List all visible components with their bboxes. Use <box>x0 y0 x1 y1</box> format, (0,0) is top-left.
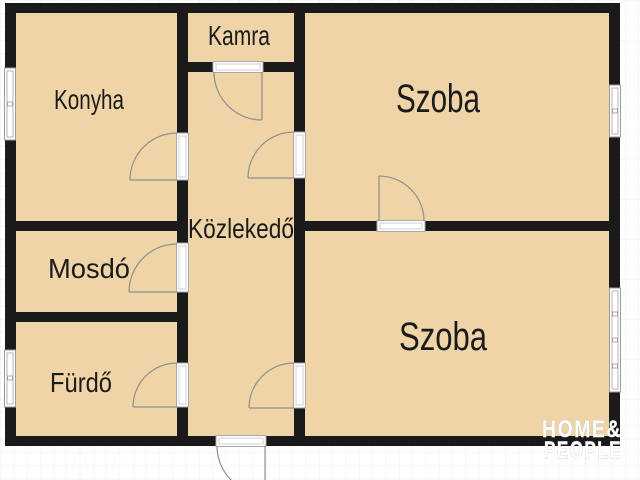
wall-mosdo-furdo <box>15 312 177 322</box>
window-furdo <box>5 350 16 407</box>
room-label-szoba-bottom: Szoba <box>399 315 488 359</box>
door-jamb-szoba-top <box>294 132 306 178</box>
door-jamb-kamra <box>213 62 263 73</box>
wall-corridor-right-3 <box>294 408 305 446</box>
window-szoba-bottom <box>610 288 621 392</box>
wall-kamra-bottom-right <box>263 62 294 72</box>
wall-top <box>5 3 620 13</box>
watermark-line2: PEOPLE <box>544 437 622 464</box>
floor-plan-page: Konyha Kamra Szoba Közlekedő Mosdó Fürdő… <box>0 0 640 480</box>
window-konyha <box>5 68 16 140</box>
room-label-furdo: Fürdő <box>50 367 112 398</box>
room-label-mosdo: Mosdó <box>48 253 130 284</box>
wall-corridor-left-4 <box>177 407 188 446</box>
room-label-szoba-top: Szoba <box>396 77 481 121</box>
watermark: HOME& PEOPLE <box>542 416 622 464</box>
wall-szoba-divider-right <box>424 221 610 231</box>
door-jamb-furdo <box>177 363 189 407</box>
wall-corridor-left-3 <box>177 292 188 363</box>
door-jamb-entrance <box>216 436 266 447</box>
wall-konyha-mosdo <box>15 221 177 231</box>
door-jamb-konyha <box>177 133 189 180</box>
wall-corridor-left-2 <box>177 180 188 243</box>
room-label-konyha: Konyha <box>54 84 124 115</box>
wall-corridor-left-1 <box>177 13 188 133</box>
room-label-kozlekedo: Közlekedő <box>188 213 294 244</box>
door-jamb-szoba-bottom <box>294 363 306 408</box>
window-szoba-top <box>610 85 621 137</box>
room-label-kamra: Kamra <box>208 20 270 51</box>
wall-corridor-right-1 <box>294 13 305 132</box>
door-jamb-szoba-divider <box>377 221 425 232</box>
wall-corridor-right-2 <box>294 178 305 363</box>
door-jamb-mosdo <box>177 243 189 292</box>
wall-szoba-divider-left <box>305 221 378 231</box>
floor-plan: Konyha Kamra Szoba Közlekedő Mosdó Fürdő… <box>0 0 640 480</box>
wall-kamra-bottom-left <box>188 62 213 72</box>
